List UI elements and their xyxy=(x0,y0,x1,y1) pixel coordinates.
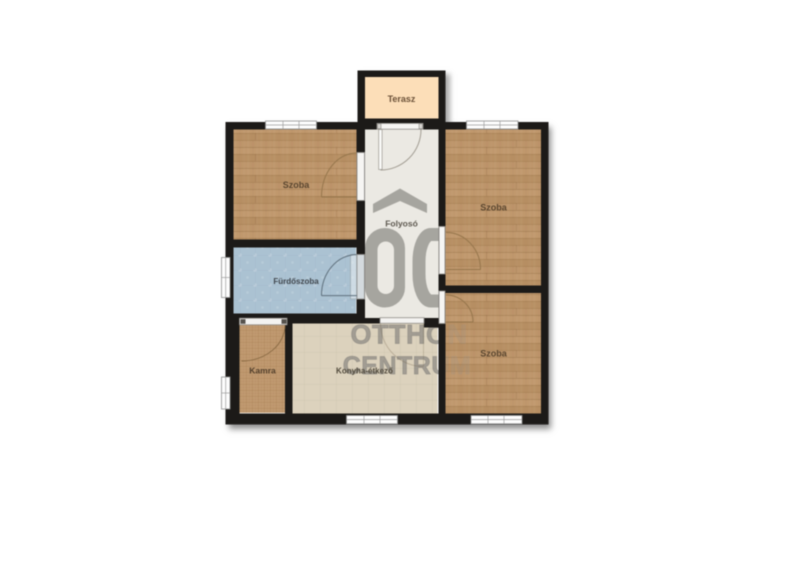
svg-text:Folyosó: Folyosó xyxy=(385,219,418,229)
svg-text:Szoba: Szoba xyxy=(283,180,310,190)
svg-text:Szoba: Szoba xyxy=(480,349,507,359)
svg-text:Kamra: Kamra xyxy=(249,366,276,376)
svg-text:Fürdőszoba: Fürdőszoba xyxy=(273,277,319,286)
svg-text:Szoba: Szoba xyxy=(480,203,507,213)
svg-text:Terasz: Terasz xyxy=(388,94,416,104)
svg-text:Konyha-étkező: Konyha-étkező xyxy=(336,367,393,376)
